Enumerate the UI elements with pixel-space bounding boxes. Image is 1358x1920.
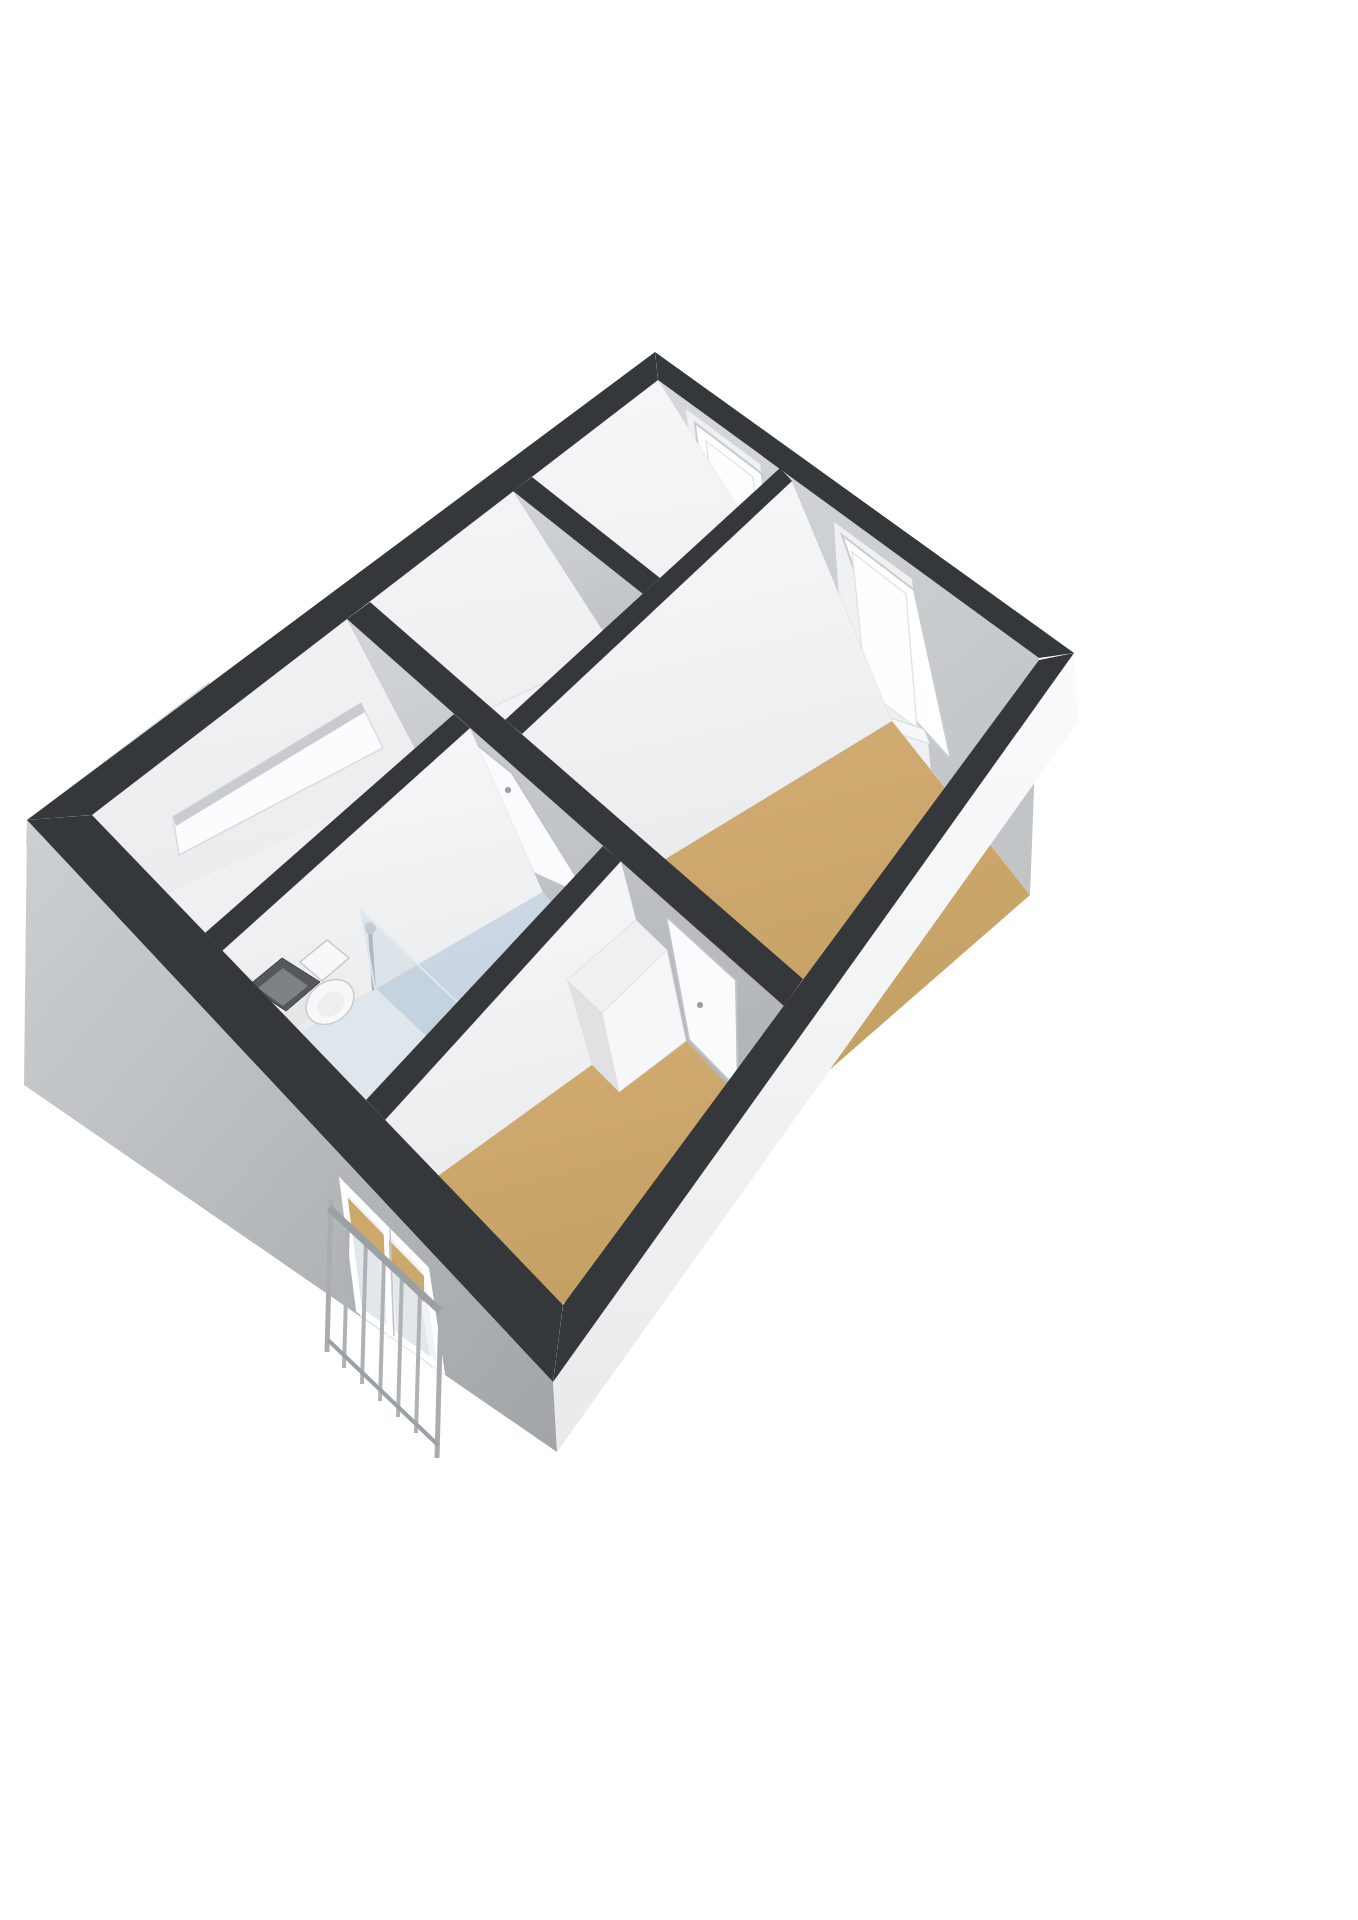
floorplan-canvas: 3D floor plan render — upper floor, bird… [0, 0, 1358, 1920]
door-bathroom-handle [505, 787, 511, 793]
door-bedroom-front-handle [697, 1002, 703, 1008]
floorplan-3d-render: 3D floor plan render — upper floor, bird… [0, 0, 1358, 1920]
